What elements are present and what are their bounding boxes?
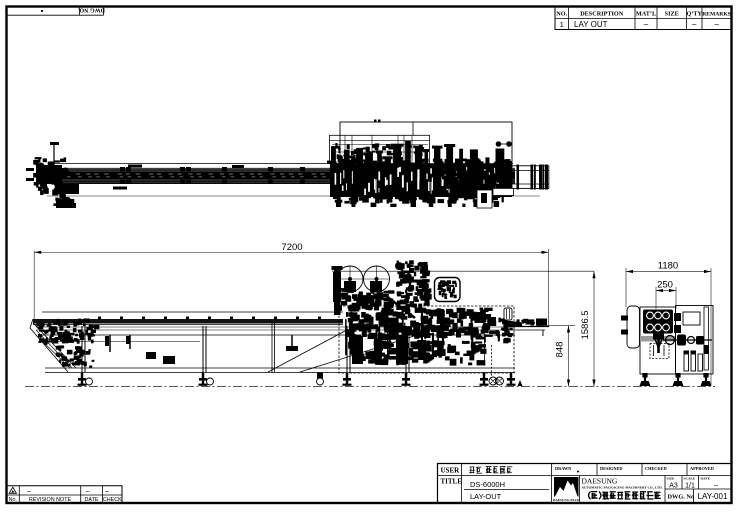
svg-text:–: – <box>692 20 697 29</box>
svg-text:DAESUNG: DAESUNG <box>582 477 618 486</box>
svg-text:DWG NO.: DWG NO. <box>78 6 106 12</box>
svg-text:–: – <box>644 20 649 29</box>
svg-text:LAY-OUT: LAY-OUT <box>470 492 502 501</box>
svg-text:1586.5: 1586.5 <box>580 310 591 339</box>
svg-text:–: – <box>105 488 109 495</box>
svg-text:–: – <box>27 488 31 495</box>
svg-text:848: 848 <box>555 342 566 358</box>
svg-text:1/1: 1/1 <box>685 483 695 490</box>
svg-text:No.: No. <box>9 497 17 503</box>
svg-text:7200: 7200 <box>281 242 302 253</box>
svg-text:1180: 1180 <box>658 261 678 272</box>
svg-text:APPROVED: APPROVED <box>690 466 714 471</box>
svg-text:AUTOMATIC PACKAGING MACHINERY: AUTOMATIC PACKAGING MACHINERY CO., LTD. <box>582 485 663 489</box>
svg-text:SIZE: SIZE <box>665 10 679 17</box>
svg-text:–: – <box>86 488 90 495</box>
svg-text:LAY OUT: LAY OUT <box>574 20 608 29</box>
svg-text:DS-6000H: DS-6000H <box>470 480 505 489</box>
svg-text:REVISION NOTE: REVISION NOTE <box>29 497 72 503</box>
svg-text:DRAWN: DRAWN <box>555 466 572 471</box>
svg-text:A3: A3 <box>669 483 678 490</box>
svg-text:DESIGNED: DESIGNED <box>600 466 622 471</box>
svg-text:DWG. No: DWG. No <box>668 494 695 501</box>
svg-text:LAY-001: LAY-001 <box>698 492 728 501</box>
svg-text:SCALE: SCALE <box>684 477 696 481</box>
svg-text:DATE: DATE <box>85 497 99 503</box>
svg-text:DESCRIPTION: DESCRIPTION <box>580 10 624 17</box>
svg-text:USER: USER <box>441 467 461 475</box>
svg-text:Q’TY: Q’TY <box>686 10 702 17</box>
svg-text:MAT’L: MAT’L <box>636 10 656 17</box>
svg-text:–: – <box>714 20 719 29</box>
svg-text:DAESUNG PACK: DAESUNG PACK <box>553 498 580 502</box>
svg-text:1: 1 <box>560 20 564 29</box>
svg-text:TITLE: TITLE <box>441 478 463 486</box>
svg-text:CHECKED: CHECKED <box>645 466 667 471</box>
svg-text:NO.: NO. <box>556 10 567 17</box>
svg-text:–: – <box>714 483 718 490</box>
svg-text:DATE: DATE <box>701 477 711 481</box>
svg-text:SIZE: SIZE <box>667 477 676 481</box>
svg-text:REMARKS: REMARKS <box>702 11 731 17</box>
svg-text:CHECK: CHECK <box>103 497 122 503</box>
svg-text:250: 250 <box>657 280 673 291</box>
